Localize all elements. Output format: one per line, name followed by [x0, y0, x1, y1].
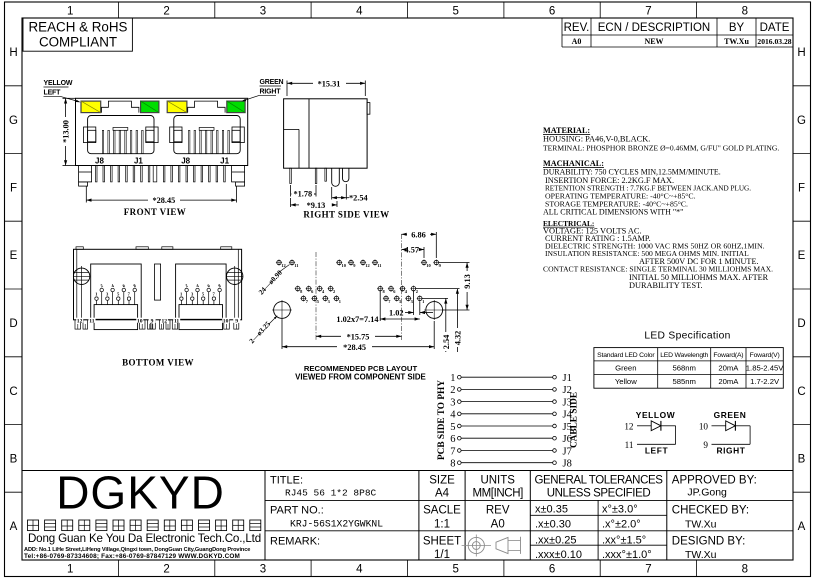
- svg-text:8: 8: [383, 289, 386, 294]
- svg-text:.xx±0.25: .xx±0.25: [535, 535, 577, 547]
- svg-text:RIGHT SIDE VIEW: RIGHT SIDE VIEW: [303, 210, 389, 220]
- svg-text:D: D: [9, 318, 17, 330]
- svg-text:CABLE SIDE: CABLE SIDE: [570, 392, 580, 448]
- svg-text:5: 5: [317, 299, 320, 304]
- svg-text:8: 8: [217, 283, 222, 289]
- svg-text:LED Specification: LED Specification: [644, 331, 730, 342]
- svg-text:5: 5: [452, 6, 458, 18]
- svg-text:J1: J1: [563, 373, 572, 384]
- svg-text:YELLOW: YELLOW: [44, 80, 73, 87]
- svg-text:3: 3: [450, 397, 455, 408]
- svg-text:12: 12: [77, 318, 83, 324]
- svg-text:6: 6: [122, 283, 127, 289]
- svg-text:G: G: [797, 115, 806, 127]
- svg-text:4.32: 4.32: [453, 331, 462, 346]
- svg-text:7: 7: [306, 299, 309, 304]
- svg-text:INSERTION FORCE: 2.2KG.F MAX.: INSERTION FORCE: 2.2KG.F MAX.: [545, 176, 674, 185]
- svg-text:11: 11: [89, 318, 94, 324]
- svg-text:9: 9: [151, 318, 154, 324]
- svg-text:.x°±2.0°: .x°±2.0°: [602, 519, 641, 531]
- svg-text:HOUSING: PA46,V-0,BLACK.: HOUSING: PA46,V-0,BLACK.: [543, 135, 650, 144]
- svg-text:TW.Xu: TW.Xu: [685, 549, 717, 561]
- svg-text:H: H: [9, 47, 17, 59]
- svg-text:1.02: 1.02: [389, 309, 404, 318]
- svg-text:*2.54: *2.54: [349, 194, 368, 203]
- svg-text:DATE: DATE: [760, 22, 790, 34]
- svg-text:DESIGND BY:: DESIGND BY:: [672, 536, 746, 548]
- svg-text:UNLESS SPECIFIED: UNLESS SPECIFIED: [547, 488, 651, 500]
- svg-text:5: 5: [117, 292, 120, 297]
- svg-text:J1: J1: [134, 157, 143, 166]
- svg-text:9.13: 9.13: [463, 274, 472, 289]
- svg-text:PCB SIDE TO PHY: PCB SIDE TO PHY: [437, 380, 447, 460]
- svg-text:*1.78: *1.78: [293, 190, 312, 199]
- svg-text:VIEWED FROM COMPONENT SIDE: VIEWED FROM COMPONENT SIDE: [295, 373, 426, 382]
- svg-text:TW.Xu: TW.Xu: [724, 37, 749, 46]
- svg-text:TERMINAL: PHOSPHOR BRONZE Ø=0.: TERMINAL: PHOSPHOR BRONZE Ø=0.46MM, G/FU…: [543, 144, 779, 153]
- svg-text:2: 2: [450, 385, 455, 396]
- svg-text:*9.13: *9.13: [307, 201, 326, 210]
- svg-text:10: 10: [137, 318, 143, 324]
- svg-text:H: H: [797, 47, 805, 59]
- svg-text:A: A: [10, 521, 18, 533]
- svg-text:F: F: [798, 183, 805, 195]
- svg-text:7: 7: [645, 564, 651, 576]
- svg-text:20mA: 20mA: [718, 364, 739, 373]
- svg-text:PART NO.:: PART NO.:: [270, 505, 324, 517]
- svg-text:6: 6: [450, 434, 455, 445]
- svg-text:TITLE:: TITLE:: [270, 475, 303, 487]
- svg-text:12: 12: [162, 318, 168, 324]
- svg-text:*15.75: *15.75: [347, 332, 370, 341]
- svg-text:.xx°±1.5°: .xx°±1.5°: [602, 535, 646, 547]
- svg-text:C: C: [797, 386, 805, 398]
- svg-text:D: D: [797, 318, 805, 330]
- svg-text:ECN / DESCRIPTION: ECN / DESCRIPTION: [598, 22, 710, 34]
- svg-text:E: E: [798, 250, 806, 262]
- svg-text:A0: A0: [491, 519, 505, 531]
- svg-text:4: 4: [110, 283, 115, 289]
- svg-text:1.7-2.2V: 1.7-2.2V: [750, 377, 780, 386]
- svg-text:2: 2: [163, 6, 169, 18]
- svg-text:A0: A0: [572, 37, 582, 46]
- svg-text:*15.31: *15.31: [318, 79, 341, 88]
- svg-text:12: 12: [281, 263, 285, 268]
- svg-text:C: C: [9, 386, 17, 398]
- svg-text:Foward(V): Foward(V): [750, 352, 780, 359]
- svg-text:MM[INCH]: MM[INCH]: [472, 488, 523, 500]
- svg-text:3: 3: [260, 6, 266, 18]
- svg-text:6: 6: [549, 564, 555, 576]
- svg-text:B: B: [10, 454, 18, 466]
- svg-text:ALL CRITICAL DIMENSIONS WITH ": ALL CRITICAL DIMENSIONS WITH "*": [543, 207, 683, 216]
- svg-text:4: 4: [356, 564, 363, 576]
- svg-text:APPROVED BY:: APPROVED BY:: [672, 475, 757, 487]
- svg-text:7: 7: [388, 299, 391, 304]
- svg-text:2.54: 2.54: [442, 335, 451, 350]
- svg-text:1: 1: [67, 6, 73, 18]
- svg-text:20mA: 20mA: [718, 377, 739, 386]
- svg-text:REV.: REV.: [564, 22, 590, 34]
- svg-text:E: E: [10, 250, 18, 262]
- svg-text:CHECKED BY:: CHECKED BY:: [672, 505, 749, 517]
- svg-text:2: 2: [163, 564, 169, 576]
- svg-text:10: 10: [426, 263, 431, 268]
- svg-text:GREEN: GREEN: [714, 410, 747, 420]
- svg-text:8: 8: [300, 289, 303, 294]
- svg-text:9: 9: [703, 440, 708, 450]
- svg-text:Dong Guan Ke You Da Electronic: Dong Guan Ke You Da Electronic Tech.Co.,…: [28, 532, 261, 545]
- svg-text:Tel:+86-0769-87334608; Fax:+86: Tel:+86-0769-87334608; Fax:+86-0769-8784…: [24, 553, 240, 560]
- svg-text:DGKYD: DGKYD: [56, 467, 225, 519]
- svg-text:24—ø0.90: 24—ø0.90: [257, 268, 284, 296]
- svg-text:12: 12: [365, 263, 369, 268]
- svg-text:REV: REV: [486, 505, 510, 517]
- svg-text:6: 6: [311, 289, 314, 294]
- svg-text:REACH & RoHS: REACH & RoHS: [29, 20, 128, 35]
- svg-text:1.85-2.45V: 1.85-2.45V: [746, 364, 784, 373]
- svg-text:9: 9: [353, 263, 356, 268]
- svg-text:B: B: [798, 454, 806, 466]
- svg-text:F: F: [10, 183, 17, 195]
- svg-text:1: 1: [339, 299, 341, 304]
- svg-text:6: 6: [393, 289, 396, 294]
- svg-text:*13.00: *13.00: [61, 120, 70, 143]
- svg-text:SHEET: SHEET: [423, 536, 461, 548]
- svg-text:KRJ-56S1X2YGWKNL: KRJ-56S1X2YGWKNL: [290, 519, 383, 530]
- svg-text:SIZE: SIZE: [429, 475, 455, 487]
- svg-text:11: 11: [174, 318, 179, 324]
- svg-text:J1: J1: [220, 157, 229, 166]
- svg-text:2—ø3.25: 2—ø3.25: [248, 320, 273, 345]
- svg-text:2: 2: [416, 289, 418, 294]
- svg-text:3: 3: [191, 292, 194, 297]
- svg-text:11: 11: [377, 263, 381, 268]
- svg-text:COMPLIANT: COMPLIANT: [39, 35, 117, 50]
- svg-text:5: 5: [450, 422, 455, 433]
- svg-text:RIGHT: RIGHT: [260, 89, 282, 96]
- svg-text:1: 1: [180, 292, 183, 297]
- svg-text:.xxx±0.10: .xxx±0.10: [535, 549, 582, 561]
- svg-text:GENERAL TOLERANCES: GENERAL TOLERANCES: [534, 475, 663, 487]
- svg-text:Foward(A): Foward(A): [713, 352, 743, 359]
- svg-text:J8: J8: [181, 157, 190, 166]
- svg-text:10: 10: [342, 263, 347, 268]
- svg-text:6.86: 6.86: [411, 230, 426, 239]
- svg-text:1: 1: [422, 299, 424, 304]
- svg-text:4: 4: [322, 289, 325, 294]
- svg-text:A4: A4: [435, 488, 450, 500]
- svg-text:LEFT: LEFT: [645, 445, 669, 455]
- svg-text:3: 3: [106, 292, 109, 297]
- svg-text:10: 10: [699, 421, 709, 431]
- svg-text:7: 7: [450, 446, 455, 457]
- svg-text:11: 11: [625, 440, 634, 450]
- svg-text:REMARK:: REMARK:: [270, 536, 320, 548]
- svg-text:RECOMMENDED PCB LAYOUT: RECOMMENDED PCB LAYOUT: [304, 364, 418, 373]
- svg-text:TW.Xu: TW.Xu: [685, 519, 717, 531]
- svg-text:x°±3.0°: x°±3.0°: [602, 504, 638, 516]
- svg-text:J8: J8: [563, 459, 572, 470]
- svg-text:BY: BY: [729, 22, 745, 34]
- svg-text:RJ45 56 1*2 8P8C: RJ45 56 1*2 8P8C: [285, 488, 377, 499]
- svg-text:8: 8: [742, 564, 748, 576]
- svg-text:8: 8: [450, 459, 455, 470]
- svg-text:568nm: 568nm: [672, 364, 696, 373]
- svg-text:585nm: 585nm: [672, 377, 696, 386]
- svg-text:LEFT: LEFT: [44, 90, 62, 97]
- svg-text:6: 6: [207, 283, 212, 289]
- svg-text:12: 12: [624, 421, 634, 431]
- svg-text:A: A: [798, 521, 806, 533]
- svg-text:1: 1: [450, 373, 455, 384]
- svg-text:1: 1: [67, 564, 73, 576]
- svg-text:BOTTOM VIEW: BOTTOM VIEW: [122, 357, 194, 367]
- svg-text:GREEN: GREEN: [260, 79, 284, 86]
- svg-text:6: 6: [549, 6, 555, 18]
- svg-text:4: 4: [356, 6, 363, 18]
- svg-text:G: G: [9, 115, 18, 127]
- svg-text:2: 2: [100, 283, 105, 289]
- svg-text:1.02x7=7.14: 1.02x7=7.14: [336, 315, 378, 324]
- svg-text:5: 5: [452, 564, 458, 576]
- svg-text:4: 4: [450, 410, 456, 421]
- svg-text:NEW: NEW: [644, 37, 663, 46]
- svg-text:11: 11: [294, 263, 298, 268]
- svg-text:.xxx°±1.0°: .xxx°±1.0°: [602, 549, 652, 561]
- svg-text:2: 2: [333, 289, 335, 294]
- svg-text:*28.45: *28.45: [152, 196, 175, 205]
- svg-text:FRONT VIEW: FRONT VIEW: [124, 207, 186, 217]
- svg-text:10: 10: [223, 318, 229, 324]
- svg-text:x±0.35: x±0.35: [535, 504, 568, 516]
- svg-text:.x±0.30: .x±0.30: [535, 519, 571, 531]
- svg-text:7: 7: [645, 6, 651, 18]
- svg-text:7: 7: [213, 292, 216, 297]
- svg-text:4: 4: [195, 283, 200, 289]
- svg-text:7: 7: [128, 292, 131, 297]
- svg-text:2: 2: [184, 283, 189, 289]
- svg-text:3: 3: [328, 299, 331, 304]
- svg-text:8: 8: [742, 6, 748, 18]
- svg-text:Standard LED Color: Standard LED Color: [597, 352, 655, 359]
- svg-text:9: 9: [235, 318, 238, 324]
- svg-text:JP.Gong: JP.Gong: [687, 487, 727, 499]
- svg-text:Yellow: Yellow: [615, 377, 637, 386]
- svg-text:3: 3: [260, 564, 266, 576]
- svg-text:4: 4: [405, 289, 408, 294]
- svg-text:8: 8: [133, 283, 138, 289]
- svg-text:*28.45: *28.45: [343, 343, 366, 352]
- svg-text:SACLE: SACLE: [423, 505, 461, 517]
- svg-text:Green: Green: [615, 364, 636, 373]
- svg-text:4.57: 4.57: [405, 246, 420, 255]
- svg-text:RIGHT: RIGHT: [716, 445, 745, 455]
- svg-text:1:1: 1:1: [434, 519, 450, 531]
- svg-text:UNITS: UNITS: [480, 475, 515, 487]
- svg-text:1/1: 1/1: [434, 549, 450, 561]
- svg-text:2016.03.28: 2016.03.28: [757, 37, 791, 46]
- svg-text:YELLOW: YELLOW: [636, 410, 675, 420]
- svg-text:9: 9: [439, 263, 442, 268]
- svg-text:LED Wavelength: LED Wavelength: [660, 352, 708, 359]
- svg-text:J8: J8: [95, 157, 104, 166]
- svg-text:5: 5: [202, 292, 205, 297]
- svg-text:1: 1: [95, 292, 98, 297]
- svg-text:DURABILITY TEST.: DURABILITY TEST.: [629, 281, 703, 290]
